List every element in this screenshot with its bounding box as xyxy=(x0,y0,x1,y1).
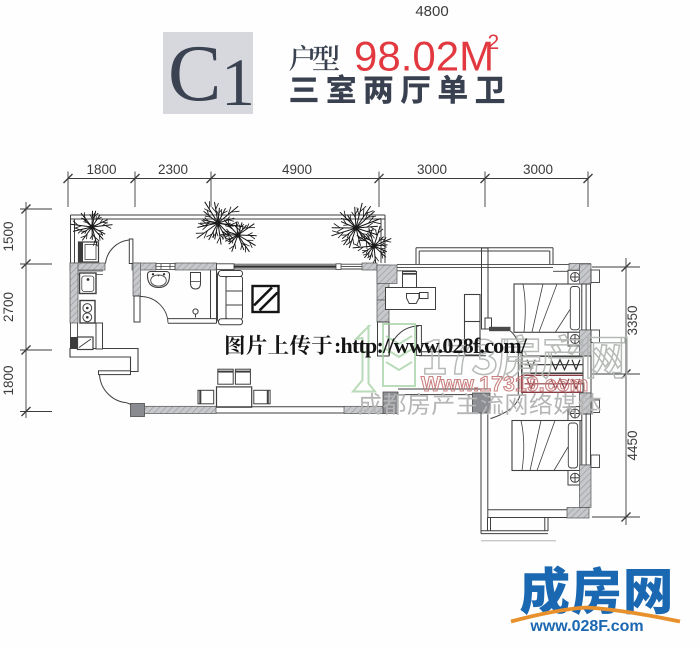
svg-text:www.028F.com: www.028F.com xyxy=(529,618,643,635)
svg-text::http://www.028f.com/: :http://www.028f.com/ xyxy=(334,333,528,358)
svg-text:1800: 1800 xyxy=(1,365,16,395)
svg-text:98.02M: 98.02M xyxy=(354,33,494,80)
svg-text:4800: 4800 xyxy=(415,3,448,20)
svg-text:C: C xyxy=(168,30,221,118)
svg-text:4900: 4900 xyxy=(282,162,312,177)
svg-text:1: 1 xyxy=(221,44,255,120)
svg-text:1800: 1800 xyxy=(86,162,116,177)
svg-text:2: 2 xyxy=(488,31,500,54)
svg-text:3350: 3350 xyxy=(625,305,640,335)
svg-text:4450: 4450 xyxy=(625,430,640,460)
svg-text:1500: 1500 xyxy=(1,221,16,251)
svg-text:Www.17319.com: Www.17319.com xyxy=(421,373,589,396)
svg-text:3000: 3000 xyxy=(523,162,553,177)
svg-text:2300: 2300 xyxy=(158,162,188,177)
svg-text:2700: 2700 xyxy=(1,292,16,322)
svg-text:3000: 3000 xyxy=(417,162,447,177)
